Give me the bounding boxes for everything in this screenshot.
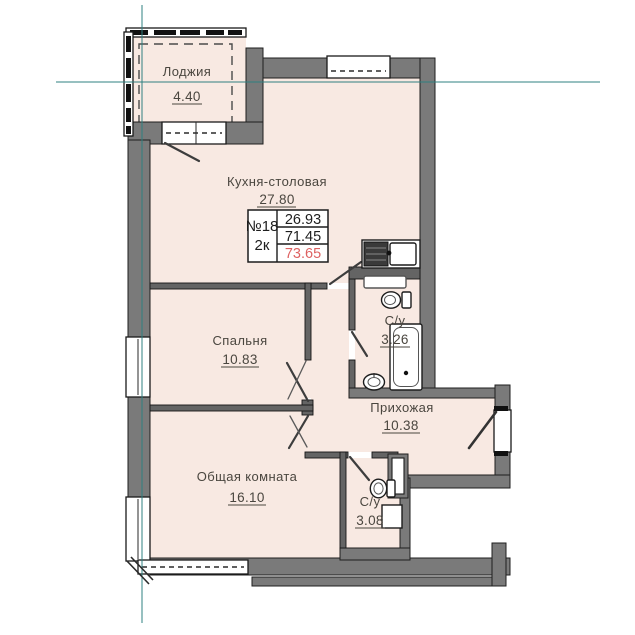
corridor-floor bbox=[305, 289, 349, 398]
room-area-living: 16.10 bbox=[229, 490, 264, 505]
toilet-tank bbox=[387, 480, 395, 497]
wall-segment bbox=[398, 475, 510, 488]
neighbor-wall-outline bbox=[492, 543, 506, 586]
room-label-loggia: Лоджия bbox=[163, 64, 211, 79]
room-area-kitchen: 27.80 bbox=[259, 192, 294, 207]
neighbor-wall-outline bbox=[252, 577, 504, 586]
sink-icon bbox=[364, 373, 385, 390]
toilet-tank bbox=[402, 292, 411, 308]
room-area-hallway: 10.38 bbox=[383, 418, 418, 433]
glazing-seg bbox=[126, 84, 131, 102]
floor-plan: №18 2к 26.93 71.45 73.65 Лоджия 4.40 Кух… bbox=[0, 0, 635, 635]
glazing-seg bbox=[154, 30, 176, 35]
partition bbox=[311, 283, 327, 289]
glazing-seg bbox=[228, 30, 242, 35]
room-area-loggia: 4.40 bbox=[173, 89, 200, 104]
door-hinge-mark bbox=[494, 406, 508, 411]
toilet-icon bbox=[382, 292, 412, 308]
unit-number: №18 bbox=[246, 218, 279, 235]
room-label-bathroom2: С/у bbox=[360, 494, 381, 509]
room-area-bedroom: 10.83 bbox=[222, 352, 257, 367]
kitchen-sink-icon bbox=[362, 240, 420, 268]
glazing-seg bbox=[126, 36, 131, 52]
partition bbox=[349, 360, 355, 388]
bathroom1-cabinet bbox=[364, 276, 406, 288]
washing-machine-icon bbox=[382, 505, 402, 528]
unit-layout: 2к bbox=[255, 237, 270, 254]
living-floor bbox=[150, 411, 340, 560]
loggia-floor bbox=[131, 37, 246, 136]
sink-basin bbox=[390, 243, 416, 265]
room-area-bathroom2: 3.08 bbox=[356, 513, 383, 528]
wall-segment bbox=[246, 48, 263, 128]
partition bbox=[150, 283, 311, 289]
kitchen-window bbox=[327, 56, 390, 78]
entrance-opening bbox=[494, 410, 511, 452]
glazing-seg bbox=[180, 30, 200, 35]
room-area-bathroom1: 3.26 bbox=[381, 332, 408, 347]
partition bbox=[349, 277, 355, 330]
wall-segment bbox=[340, 548, 410, 560]
glazing-seg bbox=[126, 108, 131, 122]
room-label-kitchen: Кухня-столовая bbox=[227, 174, 327, 189]
room-label-hallway: Прихожая bbox=[370, 400, 433, 415]
glazing-seg bbox=[126, 58, 131, 78]
unit-total-area-with-loggia: 73.65 bbox=[285, 246, 321, 262]
room-label-bedroom: Спальня bbox=[212, 333, 267, 348]
door-hinge-mark bbox=[494, 451, 508, 456]
unit-total-area: 71.45 bbox=[285, 229, 321, 245]
partition bbox=[150, 405, 313, 411]
glazing-seg bbox=[206, 30, 224, 35]
unit-info-table: №18 2к 26.93 71.45 73.65 bbox=[246, 210, 328, 262]
kitchen-floor-upper bbox=[263, 78, 420, 144]
bathtub-drain bbox=[404, 371, 408, 375]
unit-living-area: 26.93 bbox=[285, 212, 321, 228]
room-label-bathroom1: С/у bbox=[385, 313, 406, 328]
glazing-seg bbox=[126, 126, 131, 134]
wall-segment bbox=[226, 122, 263, 144]
partition bbox=[340, 452, 346, 548]
faucet bbox=[387, 251, 392, 256]
partition bbox=[305, 283, 311, 360]
room-label-living: Общая комната bbox=[197, 469, 298, 484]
